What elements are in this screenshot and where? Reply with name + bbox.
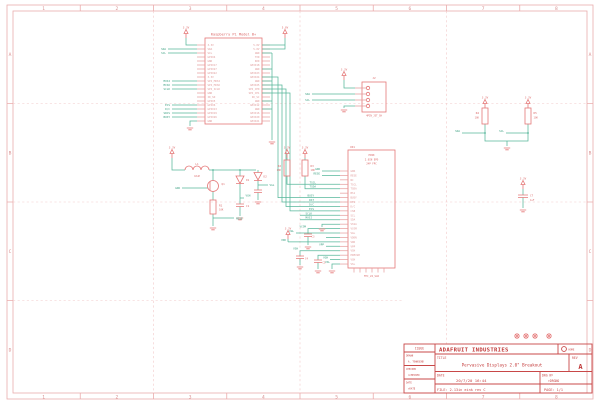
l1-value: 10uH [194,175,200,178]
eink-pin-name: PREVGH [351,253,361,257]
boost-circuit: 3.3V L1 10uH Q1 R1 10K D1 D2 C1 GDR RESE… [169,146,275,230]
r1-refdes: R1 [219,204,223,208]
cap-c2 [254,190,262,193]
net-label-vsh: VSH [293,247,298,251]
rpi-pin-name: GPIO25 [250,83,260,87]
eink-pin-name: VGH [351,258,356,262]
rpi-pin-name: ID_SC [252,95,260,99]
eink-pin-name: RESE [351,173,358,177]
frame-column-number: 7 [482,6,485,12]
mosfet-q1 [208,181,219,192]
net-label-vpp: VPP [319,242,324,246]
jst-pin [366,104,369,107]
gnd-icon [504,148,510,150]
junction-dot [527,132,529,134]
resistor-r3 [302,160,308,176]
rpi-pin-name: 5.0V [253,47,260,51]
net-label-ecs: ECS [309,207,314,211]
eink-pin-name: VCOM [351,227,358,231]
rpi-pin-name: GPIO17 [208,63,218,67]
r2-refdes: R2 [278,164,282,168]
r2-value: 10K [277,169,282,172]
gnd-icon [305,247,311,249]
drawn-value: A. TOWNSEND [408,361,424,364]
rpi-pins-left: 3.3VSDASCLGPIO4GNDGPIO17GPIO27GPIO223.3V… [197,43,220,123]
net-label-sclk: SCLK [164,87,171,91]
eink-pin-name: VSSA [351,222,358,226]
net-label-gdr: GDR [315,167,320,171]
frame-row-letter: C [9,249,12,255]
net-label-sclk: SCLK [306,211,313,215]
rpi-pin-name: 5.0V [253,43,260,47]
rpi-pin-name: GND [208,91,213,95]
mounting-hole-icon [524,334,528,338]
power-3v3-icon [521,181,525,190]
net-label-tsda: TSDA [310,185,317,189]
net-label-vgl: VGL [270,183,275,187]
rpi-pin-name: GND [255,79,260,83]
jst-body [362,82,386,112]
junction-dot [484,132,486,134]
rpi-pin-name: GPIO16 [250,111,260,115]
cap-c7 [518,195,528,198]
checked-value: >CHECKED [408,374,420,377]
r4-refdes: R4 [476,111,480,115]
power-3v3-icon [526,100,530,109]
logo-label: HOME [569,348,575,351]
gnd-icon [520,210,526,212]
eink-bottom-stubs [354,268,384,273]
file-value: FILE: 2.13in eink rev C [437,388,485,392]
gnd-icon [341,110,347,112]
rev-value: A [578,363,583,371]
eink-pin-name: VGL [351,231,356,235]
mounting-hole-icon [515,334,519,338]
cap-c4 [296,256,304,259]
power-3v3-label: 3.3V [525,96,532,100]
rpi-pin-name: GND [208,119,213,123]
r1-value: 10K [219,209,224,212]
rpi-pin-name: 3.3V [208,43,215,47]
cap-c5 [314,260,322,263]
l1-refdes: L1 [195,162,199,166]
frame-column-number: 8 [555,6,558,12]
eink-pin-name: VSL [351,262,356,266]
eink-pin-name: D/C [351,204,356,208]
net-label-vgl: VGL [289,229,294,233]
rpi-pin-name: GPIO19 [208,111,218,115]
rpi-pin-name: ID_SD [208,95,216,99]
rpi-pin-name: GND [255,107,260,111]
rpi-pin-name: GPIO23 [250,71,260,75]
net-label-scl: SCL [161,51,166,55]
r5-value: 10K [534,117,539,120]
r4-value: 10K [475,117,480,120]
eink-pin-name: VDDN [351,235,358,239]
eink-refdes: CN1 [350,145,355,149]
eink-pin-name: VDD [351,240,356,244]
frame-row-letter: D [589,348,592,354]
power-3v3-label: 3.3V [169,146,176,150]
rpi-pin-name: SPI_SCLK [208,87,221,91]
eink-pin-name: RES [351,200,356,204]
logo-icon [562,347,567,352]
power-3v3-icon [483,100,487,109]
jst-value: 4PIN_JST_SH [366,115,382,118]
company-name: ADAFRUIT INDUSTRIES [439,348,509,354]
gnd-icon [255,202,261,204]
c3-refdes: C3 [312,236,315,239]
eink-header-line: EINK [368,153,375,157]
frame-row-letter: B [589,151,592,157]
rpi-pin-name: GPIO13 [208,107,218,111]
frame-column-number: 3 [189,6,192,12]
c7-value: 1uF [530,199,535,202]
frame-row-letter: A [9,52,12,58]
gnd-icon [269,142,275,144]
r3-refdes: R3 [311,164,315,168]
frame-column-number: 5 [335,394,338,400]
rpi-pin-name: GPIO6 [208,103,216,107]
rpi-pin-name: GND [255,99,260,103]
frame-row-letter: B [9,151,12,157]
frame-column-number: 1 [42,6,45,12]
mounting-holes [515,334,551,338]
eink-connector: CN1 EINK 2.0IN EPD 24P FPC GDRRESENCTSCL… [281,145,395,278]
diode-d2 [254,173,262,181]
power-3v3-icon [303,150,307,159]
schematic-canvas: 12345678 12345678 ABCD ABCD Raspberry Pi… [0,0,600,404]
q1-refdes: Q1 [222,182,226,186]
gnd-icon [319,229,325,231]
rpi-pin-name: TXD [255,55,260,59]
eink-pin-name: TSCL [351,182,358,186]
net-label-busy: BUSY [308,194,315,198]
frame-row-letters-left: ABCD [9,52,12,354]
eink-pin-name: BS1 [351,191,356,195]
rpi-pin-name: SCL [208,51,213,55]
eink-header-line: 24P FPC [366,162,377,166]
frame-column-number: 6 [408,6,411,12]
date-value: 20/7/20 16:44 [456,378,487,383]
eink-pin-name: GDR [351,169,356,173]
title-label: TITLE [437,356,446,360]
power-5v-icon [283,30,287,39]
c7-refdes: C7 [530,194,534,198]
power-3v3-icon [184,30,188,39]
diode-d1 [236,176,244,184]
net-label-vdd: VDD [281,238,286,242]
jst-pin [366,86,369,89]
rpi-pin-name: GPIO4 [208,55,216,59]
rpi-pin-name: GPIO22 [208,71,218,75]
frame-column-number: 4 [262,6,265,12]
title-block: ISSUE DRAWN A. TOWNSEND CHECKED >CHECKED… [404,344,592,393]
date-small-value: >DATE [408,388,416,391]
resistor-r5 [525,108,531,124]
d2-refdes: D2 [264,175,268,179]
net-label-rese: RESE [314,171,321,175]
rpi-pin-name: SPI_CE0 [249,87,260,91]
rpi-pin-name: GPIO18 [250,63,260,67]
r5-refdes: R5 [534,111,538,115]
schematic-page: 12345678 12345678 ABCD ABCD Raspberry Pi… [0,0,600,404]
mounting-hole-icon [547,334,551,338]
rpi-pin-name: GPIO12 [250,103,260,107]
frame-column-number: 3 [189,394,192,400]
rpi-pin-name: RXD [255,59,260,63]
boost-wires [172,158,268,226]
rpi-pin-name: GPIO24 [250,75,260,79]
frame-column-number: 2 [115,6,118,12]
rpi-pin-name: GPIO27 [208,67,218,71]
eink-value: FPC_24_SLR [364,274,380,278]
junction-dot [212,169,214,171]
mounting-hole-icon [533,334,537,338]
eink-pin-name: NC [351,178,355,182]
power-3v3-icon [342,72,346,81]
gnd-icon [210,228,216,230]
power-5v-label: 5.0V [282,26,289,30]
net-label-scl: SCL [499,129,504,133]
power-3v3-label: 3.3V [520,177,527,181]
frame-column-number: 4 [262,394,265,400]
power-3v3-label: 3.3V [302,146,309,150]
net-label-sda: SDA [305,92,310,96]
issue-label: ISSUE [415,347,424,351]
eink-pin-name: CSB [351,209,356,213]
frame-row-letter: D [9,348,12,354]
net-label-dc: D/C [309,203,314,207]
eink-pin-name: SCL [351,213,356,217]
eink-header-line: 2.0IN EPD [365,157,379,161]
jst-pin [366,98,369,101]
eink-pin-name: BUSY [351,196,358,200]
title-value: Pervasive Displays 2.0" Breakout [462,363,543,368]
rpi-title: Raspberry Pi Model B+ [211,33,257,37]
frame-column-number: 1 [42,394,45,400]
jst-refdes: J2 [372,76,376,80]
date-small-label: DATE [406,382,412,385]
rpi-pin-name: 3.3V [208,75,215,79]
right-pullup-wires [462,124,528,146]
checked-label: CHECKED [406,368,417,371]
rpi-pin-name: SPI_MISO [208,83,221,87]
frame-row-letter: A [589,52,592,58]
net-label-tscl: TSCL [310,180,317,184]
rpi-pin-name: SPI_MOSI [208,79,221,83]
resistor-r4 [482,108,488,124]
jst-connector: J2 3.3V SDA SCL 4PIN_JST_SH [305,68,386,118]
c4-refdes: C4 [305,258,308,261]
rpi-pin-name: GND [208,59,213,63]
jst-pin [366,92,369,95]
power-3v3-icon [170,150,174,159]
c1-refdes: C1 [246,204,250,208]
rpi-pin-name: GPIO20 [250,115,260,119]
gnd-icon [315,271,321,273]
eink-pins: GDRRESENCTSCLTSDABS1BUSYRESD/CCSBSCLSDAV… [340,169,360,266]
right-cap: 3.3V C7 1uF [518,177,535,212]
power-3v3-icon [285,150,289,159]
net-label-mosi: MOSI [306,216,313,220]
d1-refdes: D1 [246,178,250,182]
net-label-vgh: VGH [246,194,251,198]
net-label-scl: SCL [305,98,310,102]
rpi-pin-name: GND [255,67,260,71]
eink-pin-name: TSDA [351,187,358,191]
inductor-l1 [185,166,209,170]
rpi-pin-name: GPIO26 [208,115,218,119]
rpi-pins-right: 5.0V5.0VGNDTXDRXDGPIO18GNDGPIO23GPIO24GN… [249,43,270,123]
net-label-gdr: GDR [175,186,180,190]
frame-column-number: 2 [115,394,118,400]
power-3v3-label: 3.3V [284,146,291,150]
eink-pin-name: VPP [351,244,356,248]
drawing-frame: 12345678 12345678 ABCD ABCD [7,5,593,400]
frame-column-number: 5 [335,6,338,12]
net-label-vsl: VSL [325,260,330,264]
cap-c1 [236,204,244,207]
gnd-icon [329,271,335,273]
junction-dot [239,169,241,171]
eink-pin-name: VSH [351,249,356,253]
date-label: DATE [437,373,445,377]
net-label-sda: SDA [455,129,460,133]
drg-value: >DRGNO [548,379,559,383]
drawn-label: DRAWN [406,355,414,358]
power-3v3-label: 3.3V [183,26,190,30]
rev-label: REV [572,356,578,360]
net-label-rese: RESE [236,217,243,221]
frame-column-number: 8 [555,394,558,400]
gnd-icon [187,128,193,130]
gnd-icon [297,267,303,269]
rpi-pin-name: GPIO21 [250,119,260,123]
net-label-vgh: VGH [323,256,328,260]
rpi-pin-name: SDA [208,47,213,51]
eink-pin-name: SDA [351,218,356,222]
net-label-busy: BUSY [164,115,171,119]
rpi-pin-name: GPIO5 [208,99,216,103]
rpi-pin-name: SPI_CE1 [249,91,260,95]
net-label-vcom: VCOM [300,225,307,229]
net-label-rst: RST [309,198,314,202]
frame-row-letters-right: ABCD [589,52,592,354]
page-value: PAGE: 1/1 [544,388,563,392]
frame-row-letter: C [589,249,592,255]
power-3v3-label: 3.3V [341,68,348,72]
frame-column-number: 7 [482,394,485,400]
rpi-pin-name: GND [255,51,260,55]
power-3v3-label: 3.3V [482,96,489,100]
drg-label: DRG Nº [542,373,553,377]
resistor-r2 [284,160,290,176]
frame-column-number: 6 [408,394,411,400]
